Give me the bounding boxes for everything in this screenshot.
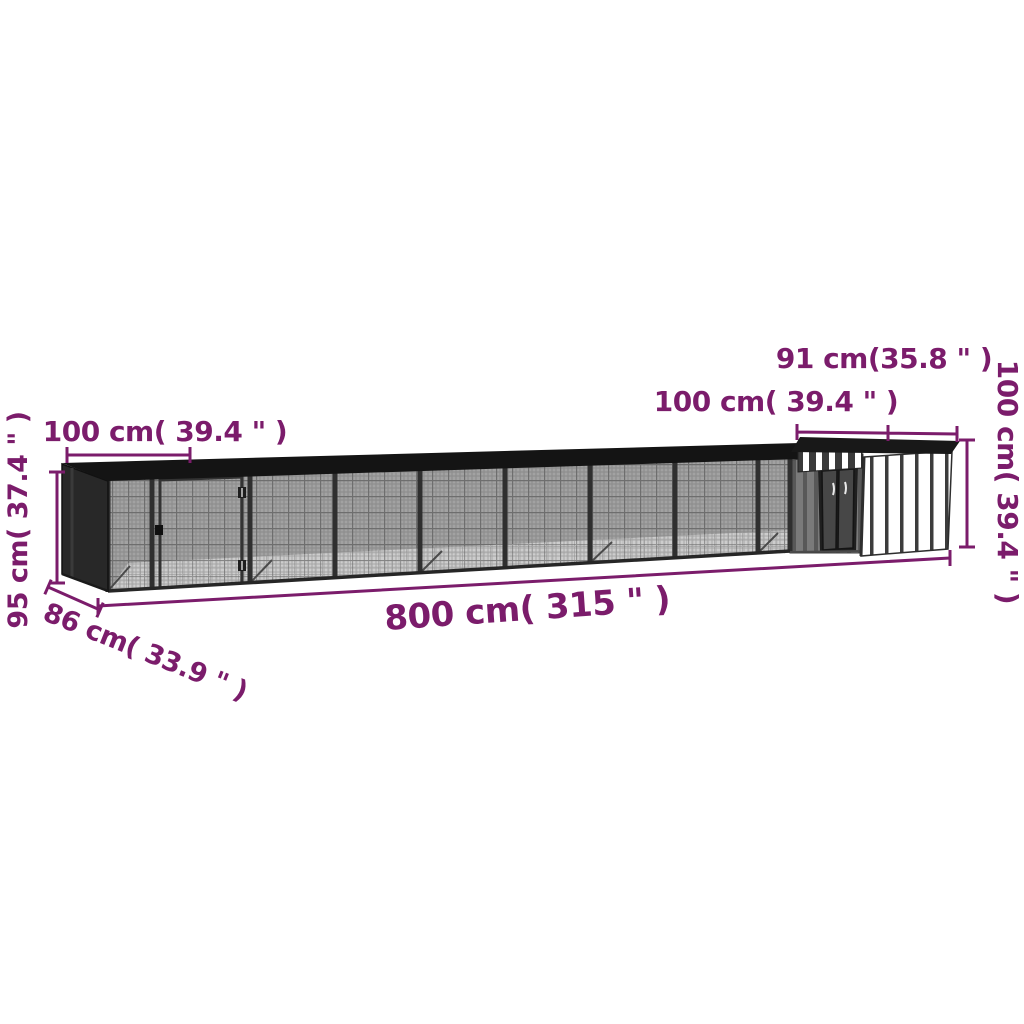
shed-base-edge bbox=[790, 551, 861, 552]
dim-label-shed-width-100: 100 cm( 39.4 " ) bbox=[654, 385, 898, 418]
dim-label-shed-roof-91: 91 cm(35.8 " ) bbox=[776, 342, 992, 375]
door-knob-icon bbox=[155, 525, 163, 535]
run-left-end-panel bbox=[62, 464, 108, 591]
product-diagram-page: 100 cm( 39.4 " ) 95 cm( 37.4 " ) 86 cm( … bbox=[0, 0, 1024, 1024]
shed-door-right bbox=[838, 469, 854, 549]
dim-label-depth-86: 86 cm( 33.9 " ) bbox=[39, 597, 252, 707]
shed-roof bbox=[791, 437, 960, 454]
coop-dimension-diagram: 100 cm( 39.4 " ) 95 cm( 37.4 " ) 86 cm( … bbox=[0, 0, 1024, 1024]
shed-door-left bbox=[822, 470, 837, 550]
dim-line-right-100 bbox=[959, 440, 975, 547]
dim-label-right-100: 100 cm( 39.4 " ) bbox=[991, 360, 1024, 604]
dim-label-left-95: 95 cm( 37.4 " ) bbox=[3, 411, 34, 628]
shed-side-wall bbox=[861, 451, 952, 556]
dim-label-top-left-100: 100 cm( 39.4 " ) bbox=[43, 415, 287, 448]
